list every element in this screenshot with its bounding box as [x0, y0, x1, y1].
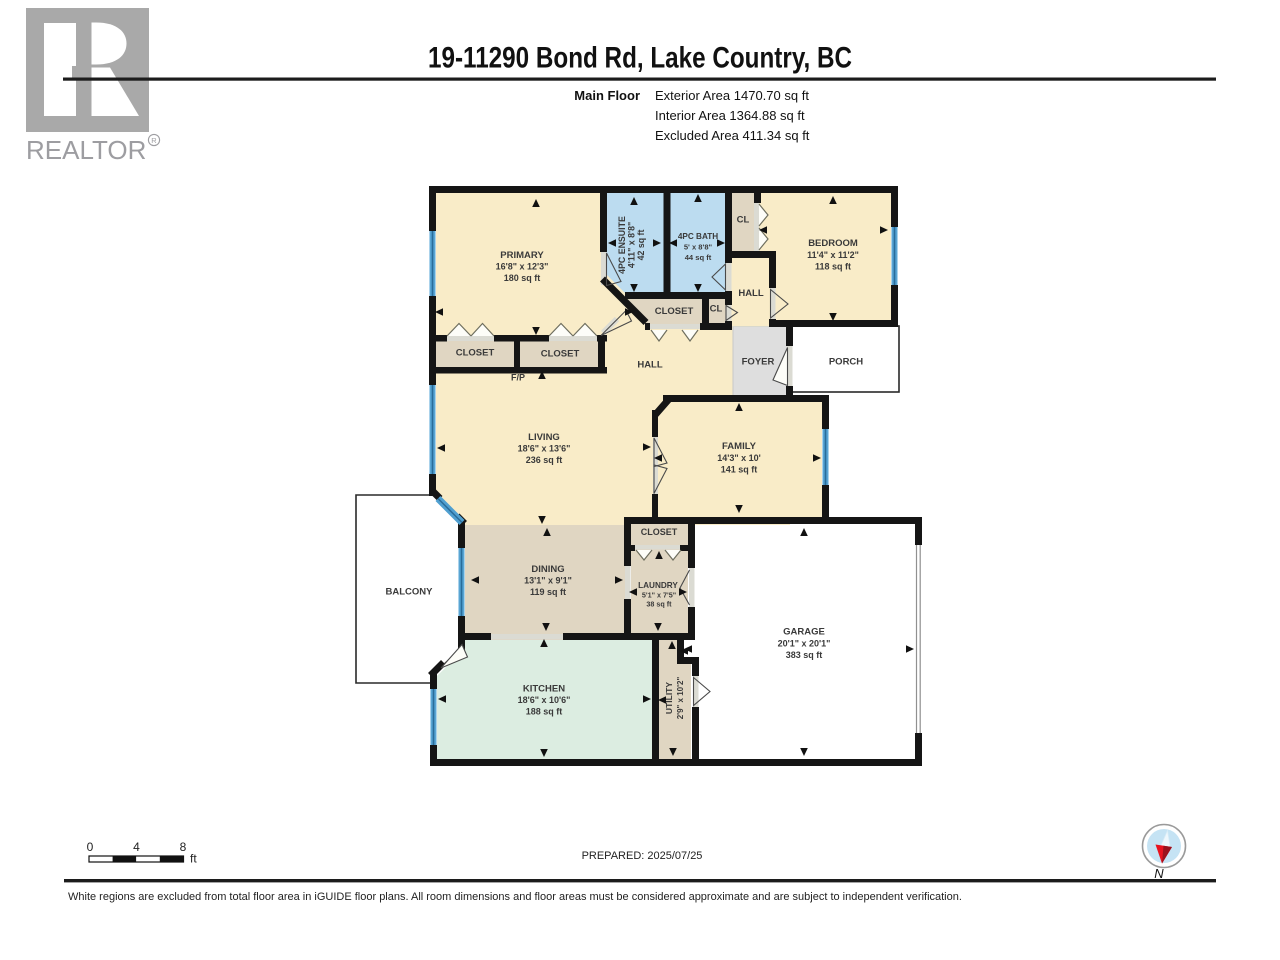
svg-text:118 sq ft: 118 sq ft: [815, 262, 851, 272]
svg-text:16'8" x 12'3": 16'8" x 12'3": [496, 262, 549, 272]
svg-text:4'11" x 8'8": 4'11" x 8'8": [627, 222, 637, 268]
svg-text:14'3" x 10': 14'3" x 10': [717, 453, 761, 463]
svg-text:Exterior Area 1470.70 sq ft: Exterior Area 1470.70 sq ft: [655, 88, 809, 103]
svg-text:R: R: [151, 136, 157, 145]
svg-text:236 sq ft: 236 sq ft: [526, 455, 563, 465]
svg-text:White regions are excluded fro: White regions are excluded from total fl…: [68, 891, 962, 903]
svg-text:PREPARED: 2025/07/25: PREPARED: 2025/07/25: [582, 850, 703, 862]
svg-text:CLOSET: CLOSET: [541, 349, 580, 360]
svg-text:CL: CL: [710, 304, 723, 315]
svg-text:19-11290 Bond Rd, Lake Country: 19-11290 Bond Rd, Lake Country, BC: [428, 42, 852, 75]
svg-text:CL: CL: [737, 215, 750, 226]
svg-text:4: 4: [133, 840, 140, 854]
svg-text:N: N: [1154, 866, 1164, 881]
svg-text:38 sq ft: 38 sq ft: [646, 600, 672, 609]
svg-text:CLOSET: CLOSET: [456, 348, 495, 359]
svg-text:18'6" x 13'6": 18'6" x 13'6": [518, 444, 571, 454]
svg-text:HALL: HALL: [738, 288, 764, 299]
svg-text:CLOSET: CLOSET: [641, 527, 678, 537]
svg-text:4PC BATH: 4PC BATH: [678, 232, 718, 241]
svg-text:383 sq ft: 383 sq ft: [786, 650, 823, 660]
svg-text:Main Floor: Main Floor: [574, 88, 640, 103]
svg-text:UTILITY: UTILITY: [664, 682, 674, 714]
svg-text:BEDROOM: BEDROOM: [808, 238, 858, 249]
svg-text:11'4" x 11'2": 11'4" x 11'2": [807, 250, 859, 260]
svg-text:DINING: DINING: [531, 564, 564, 575]
svg-text:ft: ft: [190, 852, 197, 866]
svg-text:5'1" x 7'5": 5'1" x 7'5": [642, 591, 676, 600]
svg-text:KITCHEN: KITCHEN: [523, 684, 565, 695]
svg-text:LIVING: LIVING: [528, 432, 560, 443]
svg-text:42 sq ft: 42 sq ft: [636, 230, 646, 261]
svg-text:188 sq ft: 188 sq ft: [526, 707, 563, 717]
svg-text:CLOSET: CLOSET: [655, 306, 694, 317]
svg-text:LAUNDRY: LAUNDRY: [638, 581, 678, 590]
svg-text:REALTOR: REALTOR: [26, 135, 146, 165]
svg-text:180 sq ft: 180 sq ft: [504, 273, 541, 283]
svg-text:20'1" x 20'1": 20'1" x 20'1": [778, 639, 831, 649]
svg-text:18'6" x 10'6": 18'6" x 10'6": [518, 695, 571, 705]
svg-text:2'9" x 10'2": 2'9" x 10'2": [676, 677, 685, 720]
svg-text:FAMILY: FAMILY: [722, 441, 757, 452]
svg-text:0: 0: [87, 840, 94, 854]
svg-text:HALL: HALL: [637, 360, 663, 371]
svg-text:FOYER: FOYER: [742, 357, 775, 368]
svg-text:119 sq ft: 119 sq ft: [530, 587, 566, 597]
svg-text:5' x 8'8": 5' x 8'8": [684, 243, 713, 252]
svg-text:PORCH: PORCH: [829, 357, 863, 368]
svg-text:44 sq ft: 44 sq ft: [685, 253, 712, 262]
svg-text:141 sq ft: 141 sq ft: [721, 465, 758, 475]
svg-text:Excluded Area 411.34 sq ft: Excluded Area 411.34 sq ft: [655, 128, 810, 143]
svg-text:13'1" x 9'1": 13'1" x 9'1": [524, 576, 572, 586]
svg-text:BALCONY: BALCONY: [386, 587, 434, 598]
svg-text:Interior Area 1364.88 sq ft: Interior Area 1364.88 sq ft: [655, 108, 805, 123]
svg-text:GARAGE: GARAGE: [783, 627, 825, 638]
svg-text:PRIMARY: PRIMARY: [500, 250, 544, 261]
svg-text:8: 8: [180, 840, 187, 854]
svg-text:F/P: F/P: [511, 373, 525, 383]
svg-text:4PC ENSUITE: 4PC ENSUITE: [617, 216, 627, 274]
